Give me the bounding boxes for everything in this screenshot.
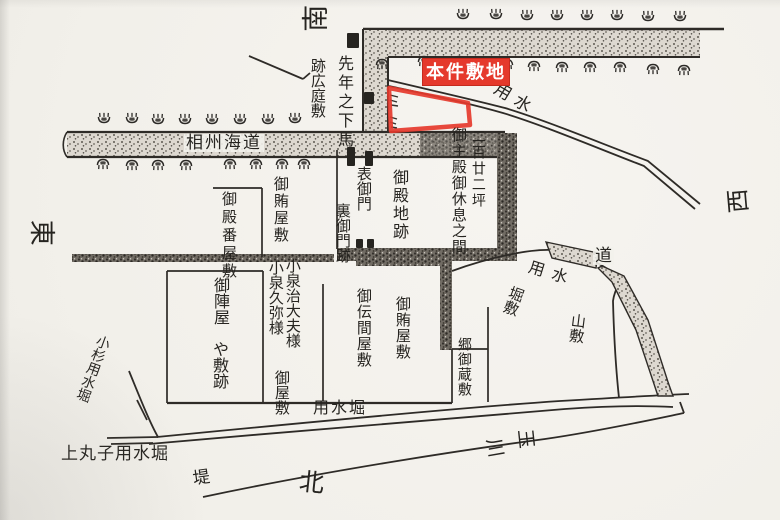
compass-south: 南 [302, 5, 331, 32]
river-name-char-kawa: 川 [482, 437, 505, 459]
southeast-road-band [546, 242, 673, 396]
north-south-road-band [363, 29, 388, 133]
road-label-michi: 道 [593, 247, 614, 265]
compass-west: 西 [726, 188, 753, 214]
parcel-omote-gomon: 表御門 [354, 166, 370, 216]
parcel-ato-hiroba-shiki: 跡広庭敷 [308, 58, 324, 124]
tree-icon [647, 65, 658, 75]
parcel-sennen-no-geba: 先年之下馬 [334, 55, 351, 155]
parcel-koizumi-jidayu: 小泉治大夫様 [283, 258, 299, 358]
tree-icon [152, 114, 163, 124]
tree-icon [678, 66, 689, 76]
parcel-ya-shiki-ato: や敷跡 [209, 341, 226, 395]
waterway-label-yosui-bori: 用水堀 [313, 401, 367, 418]
compass-north: 北 [298, 470, 326, 499]
parcel-odenma-yashiki: 御伝間屋敷 [354, 288, 370, 374]
parcel-yamashiki: 山敷 [565, 312, 585, 348]
tree-icon [614, 63, 625, 73]
waterway-label-tsutsumi: 堤 [192, 468, 211, 488]
sagami-kaido-road-band [63, 132, 505, 157]
parcel-ojinya: 御陣屋 [210, 277, 227, 331]
compass-east: 東 [27, 220, 55, 246]
parcel-tsubo-222: 二百廿二坪 [469, 129, 484, 211]
waterway-label-kamimaruko-yosui-bori: 上丸子用水堀 [61, 445, 169, 463]
tree-icon [584, 63, 595, 73]
subject-site-tag: 本件敷地 [422, 58, 510, 86]
tree-icon [528, 62, 539, 72]
tree-icon [262, 114, 273, 124]
parcel-goten-ban-yashiki: 御殿番屋敷 [216, 191, 239, 251]
parcel-go-okura-shiki: 郷御蔵敷 [455, 337, 470, 403]
tree-icon [457, 9, 468, 19]
historical-site-map: 本件敷地 南 東 西 北 相州海道 道 用水 用水 用水堀 小杉用水堀 上丸子用… [0, 0, 780, 520]
tree-icon [97, 160, 108, 170]
tree-icon [152, 161, 163, 171]
tree-icon [642, 11, 653, 21]
tree-icon [581, 10, 592, 20]
parcel-ura-gomon-ato: 裏御門跡 [333, 203, 349, 269]
tree-icon [611, 10, 622, 20]
tree-icon [126, 113, 137, 123]
parcel-oyashiki: 御屋敷 [272, 370, 288, 420]
tree-icon [180, 161, 191, 171]
site-outline-red [389, 88, 470, 131]
tree-icon [250, 160, 261, 170]
tree-icon [298, 160, 309, 170]
tree-icon [126, 161, 137, 171]
parcel-omakanai-yashiki-upper: 御賄屋敷 [271, 176, 287, 246]
parcel-koizumi-kyuya: 小泉久弥様 [266, 260, 282, 345]
tree-icon [289, 113, 300, 123]
parcel-omakanai-yashiki-lower: 御賄屋敷 [393, 296, 409, 366]
tree-icon [179, 114, 190, 124]
parcel-goshuden-kyusoku: 御主殿御休息之間 [449, 127, 465, 263]
tree-icon [234, 114, 245, 124]
top-road-band [363, 29, 724, 57]
tree-icon [276, 160, 287, 170]
tree-icon [98, 113, 109, 123]
road-label-sagami-kaido: 相州海道 [184, 134, 264, 152]
tree-icon [206, 114, 217, 124]
tree-icon [224, 160, 235, 170]
tree-icon [551, 10, 562, 20]
river-name-char-tama: 玉 [514, 429, 536, 450]
tree-icon [556, 63, 567, 73]
parcel-goten-chi-ato: 御殿地跡 [389, 169, 406, 241]
map-linework [0, 0, 780, 520]
tree-icon [521, 10, 532, 20]
tree-icon [490, 9, 501, 19]
tree-icon [674, 11, 685, 21]
